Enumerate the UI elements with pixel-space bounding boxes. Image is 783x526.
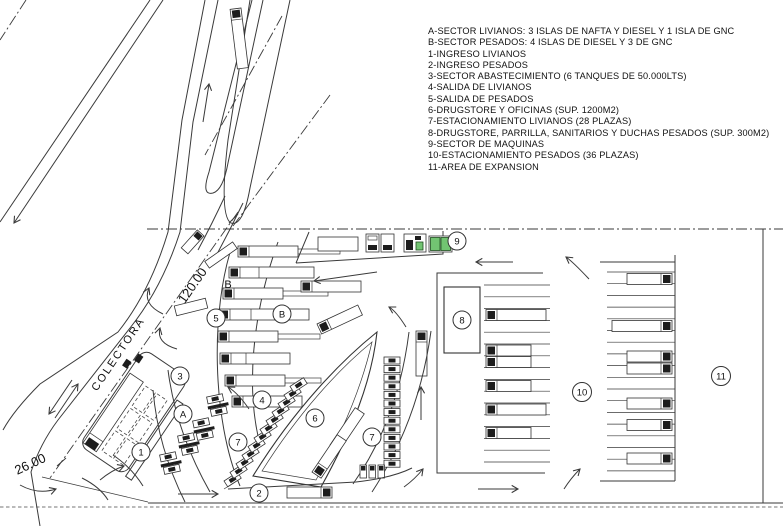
svg-text:11: 11 [716,371,726,382]
legend-item: 2-INGRESO PESADOS [428,60,780,71]
truck-icon [627,274,672,285]
svg-text:8: 8 [459,315,464,326]
svg-text:1: 1 [138,447,143,458]
truck-icon [317,305,362,334]
svg-text:2: 2 [256,488,261,499]
truck-icon [287,487,332,498]
marker-sector-7-right: 7 [363,428,381,446]
legend-item: 8-DRUGSTORE, PARRILLA, SANITARIOS Y DUCH… [428,128,780,139]
truck-icon [627,363,672,374]
svg-text:10: 10 [577,387,588,398]
truck-icon [301,281,361,292]
marker-sector-10: 10 [573,383,592,402]
truck-icon [416,331,427,376]
truck-icon [181,230,204,254]
compressor-icon [366,234,394,252]
truck-icon [229,267,314,278]
svg-text:A: A [180,409,187,420]
svg-text:9: 9 [454,236,459,247]
marker-sector-3: 3 [171,367,189,385]
legend-item: 5-SALIDA DE PESADOS [428,94,780,105]
svg-text:5: 5 [213,313,218,324]
truck-icon [627,398,672,409]
marker-sector-7-left: 7 [229,433,247,451]
truck-icon [486,381,531,392]
moto-icon [369,465,376,478]
legend-item: 10-ESTACIONAMIENTO PESADOS (36 PLAZAS) [428,150,780,161]
marker-sector-9: 9 [448,232,466,250]
svg-text:4: 4 [259,395,264,406]
truck-icon [627,453,672,464]
machine-icon [404,234,426,252]
legend-item: 1-INGRESO LIVIANOS [428,49,780,60]
truck-icon [218,331,278,342]
truck-icon [612,321,672,332]
truck-icon [225,375,285,386]
label-sector-b-plain: B [224,279,231,291]
moto-icon [360,465,367,478]
marker-sector-a: A [174,405,192,423]
truck-icon [486,345,531,356]
moto-icon [378,465,385,478]
legend-item: 6-DRUGSTORE Y OFICINAS (SUP. 1200M2) [428,105,780,116]
truck-icon [220,353,290,364]
svg-text:B: B [279,309,285,320]
legend-item: 11-AREA DE EXPANSION [428,162,780,173]
marker-sector-5: 5 [207,309,225,327]
truck-icon [238,246,298,257]
legend-item: A-SECTOR LIVIANOS: 3 ISLAS DE NAFTA Y DI… [428,26,780,37]
marker-sector-8: 8 [453,311,471,329]
marker-sector-1: 1 [132,443,150,461]
fuel-island-icon [159,451,184,475]
truck-icon [486,357,531,368]
legend-item: B-SECTOR PESADOS: 4 ISLAS DE DIESEL Y 3 … [428,37,780,48]
parking-block-left [437,273,550,473]
truck-icon [627,351,672,362]
svg-text:7: 7 [369,432,374,443]
machine-icon [318,237,358,251]
marker-sector-6: 6 [306,409,324,427]
legend-item: 4-SALIDA DE LIVIANOS [428,82,780,93]
truck-icon [223,288,283,299]
truck-icon [219,309,309,320]
marker-sector-11: 11 [712,367,731,386]
legend-item: 9-SECTOR DE MAQUINAS [428,139,780,150]
fuel-island-icon [192,417,217,441]
legend-item: 7-ESTACIONAMIENTO LIVIANOS (28 PLAZAS) [428,116,780,127]
entry-1 [82,455,143,500]
truck-icon [486,310,546,321]
site-plan-drawing: COLECTORA 120.00 26.00 B 5 B 3 A 1 7 4 6… [0,0,783,526]
marker-sector-2: 2 [250,484,268,502]
parking-block-right [600,255,675,481]
truck-icon [230,8,248,69]
dimension-entry-width: 26.00 [12,450,48,477]
svg-text:6: 6 [312,413,317,424]
truck-icon [627,420,672,431]
marker-sector-4: 4 [253,391,271,409]
svg-text:7: 7 [235,437,240,448]
marker-sector-b: B [273,305,291,323]
legend: A-SECTOR LIVIANOS: 3 ISLAS DE NAFTA Y DI… [428,26,780,173]
legend-item: 3-SECTOR ABASTECIMIENTO (6 TANQUES DE 50… [428,71,780,82]
fuel-island-icon [206,393,231,417]
svg-text:3: 3 [177,371,182,382]
truck-icon [486,404,546,415]
truck-icon [486,428,531,439]
